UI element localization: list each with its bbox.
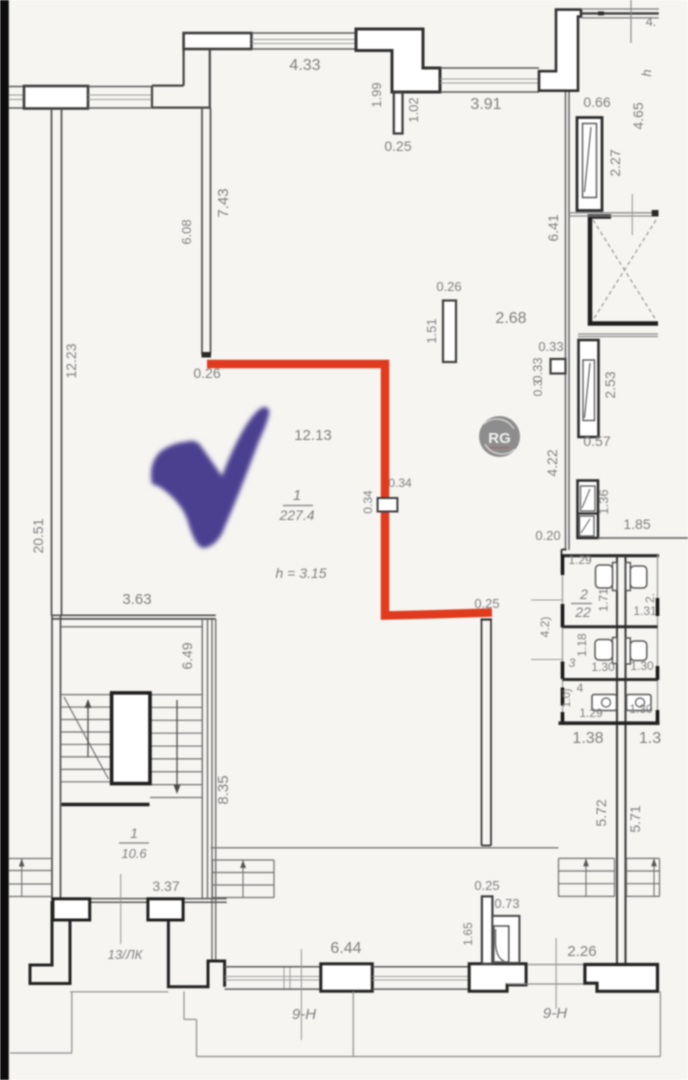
svg-text:0.34: 0.34 xyxy=(361,490,375,514)
svg-text:3.63: 3.63 xyxy=(122,591,151,608)
svg-text:1.30: 1.30 xyxy=(630,659,654,673)
svg-text:8.35: 8.35 xyxy=(215,775,232,804)
svg-text:1: 1 xyxy=(130,825,138,841)
svg-text:0.25: 0.25 xyxy=(474,878,499,893)
svg-text:2.53: 2.53 xyxy=(602,371,618,398)
svg-text:5.71: 5.71 xyxy=(627,805,643,832)
svg-text:227.4: 227.4 xyxy=(278,507,314,523)
svg-text:0.25: 0.25 xyxy=(474,596,499,611)
svg-text:0.57: 0.57 xyxy=(583,433,610,449)
svg-text:1.51: 1.51 xyxy=(424,318,439,343)
svg-text:0.25: 0.25 xyxy=(384,138,411,154)
svg-text:22: 22 xyxy=(574,604,591,620)
svg-text:1.29: 1.29 xyxy=(579,706,603,720)
svg-text:h = 3.15: h = 3.15 xyxy=(276,565,327,581)
svg-text:4.33: 4.33 xyxy=(289,57,320,74)
svg-text:9-H: 9-H xyxy=(543,1005,567,1022)
svg-text:6.08: 6.08 xyxy=(179,219,194,244)
svg-text:12.23: 12.23 xyxy=(63,343,79,378)
svg-text:1.30: 1.30 xyxy=(629,702,653,716)
svg-text:1.18: 1.18 xyxy=(575,633,589,657)
svg-text:9-H: 9-H xyxy=(292,1006,316,1023)
svg-text:3.91: 3.91 xyxy=(470,96,501,113)
svg-text:1.38: 1.38 xyxy=(572,730,603,747)
svg-text:1.02: 1.02 xyxy=(406,97,421,122)
svg-text:10.6: 10.6 xyxy=(121,846,147,861)
svg-text:4.: 4. xyxy=(646,14,657,29)
svg-text:0.33: 0.33 xyxy=(538,339,563,354)
svg-text:1.36: 1.36 xyxy=(596,489,611,514)
svg-text:1.3: 1.3 xyxy=(639,730,661,747)
svg-text:0.3: 0.3 xyxy=(531,379,545,396)
svg-text:4.65: 4.65 xyxy=(630,102,646,129)
svg-text:2.: 2. xyxy=(643,593,657,603)
svg-text:0.33: 0.33 xyxy=(530,357,545,382)
svg-text:1.65: 1.65 xyxy=(461,922,475,946)
svg-text:1: 1 xyxy=(293,487,301,504)
svg-text:6.44: 6.44 xyxy=(330,940,361,957)
svg-text:0.66: 0.66 xyxy=(583,94,610,110)
svg-text:1.99: 1.99 xyxy=(369,82,384,107)
svg-text:h: h xyxy=(639,69,654,76)
svg-text:13/ЛК: 13/ЛК xyxy=(108,947,144,962)
svg-text:20.51: 20.51 xyxy=(30,518,46,553)
svg-text:4.22: 4.22 xyxy=(544,449,560,476)
svg-text:2.68: 2.68 xyxy=(495,310,526,327)
svg-text:RG: RG xyxy=(488,430,511,447)
svg-text:1.0): 1.0) xyxy=(561,689,573,708)
svg-text:0.26: 0.26 xyxy=(193,365,220,381)
svg-text:6.41: 6.41 xyxy=(545,214,561,241)
svg-text:0.20: 0.20 xyxy=(535,528,560,543)
svg-text:1.30: 1.30 xyxy=(591,660,615,674)
svg-text:3.37: 3.37 xyxy=(152,878,179,894)
svg-text:4: 4 xyxy=(577,681,584,695)
svg-text:2.27: 2.27 xyxy=(607,149,623,176)
svg-text:0.34: 0.34 xyxy=(388,476,412,490)
svg-text:1.29: 1.29 xyxy=(568,553,592,567)
svg-text:5.72: 5.72 xyxy=(593,799,609,826)
svg-text:0.26: 0.26 xyxy=(436,279,461,294)
svg-text:1.31: 1.31 xyxy=(633,604,657,618)
svg-text:3: 3 xyxy=(569,656,576,670)
svg-text:12.13: 12.13 xyxy=(294,427,332,444)
svg-text:6.49: 6.49 xyxy=(179,642,195,669)
svg-text:2.26: 2.26 xyxy=(567,943,596,960)
svg-text:1.85: 1.85 xyxy=(623,516,650,532)
svg-text:4.2): 4.2) xyxy=(538,617,552,638)
svg-text:7.43: 7.43 xyxy=(215,188,232,217)
svg-text:0.73: 0.73 xyxy=(494,896,519,911)
svg-text:1.71: 1.71 xyxy=(597,588,611,612)
svg-text:2: 2 xyxy=(579,586,588,602)
